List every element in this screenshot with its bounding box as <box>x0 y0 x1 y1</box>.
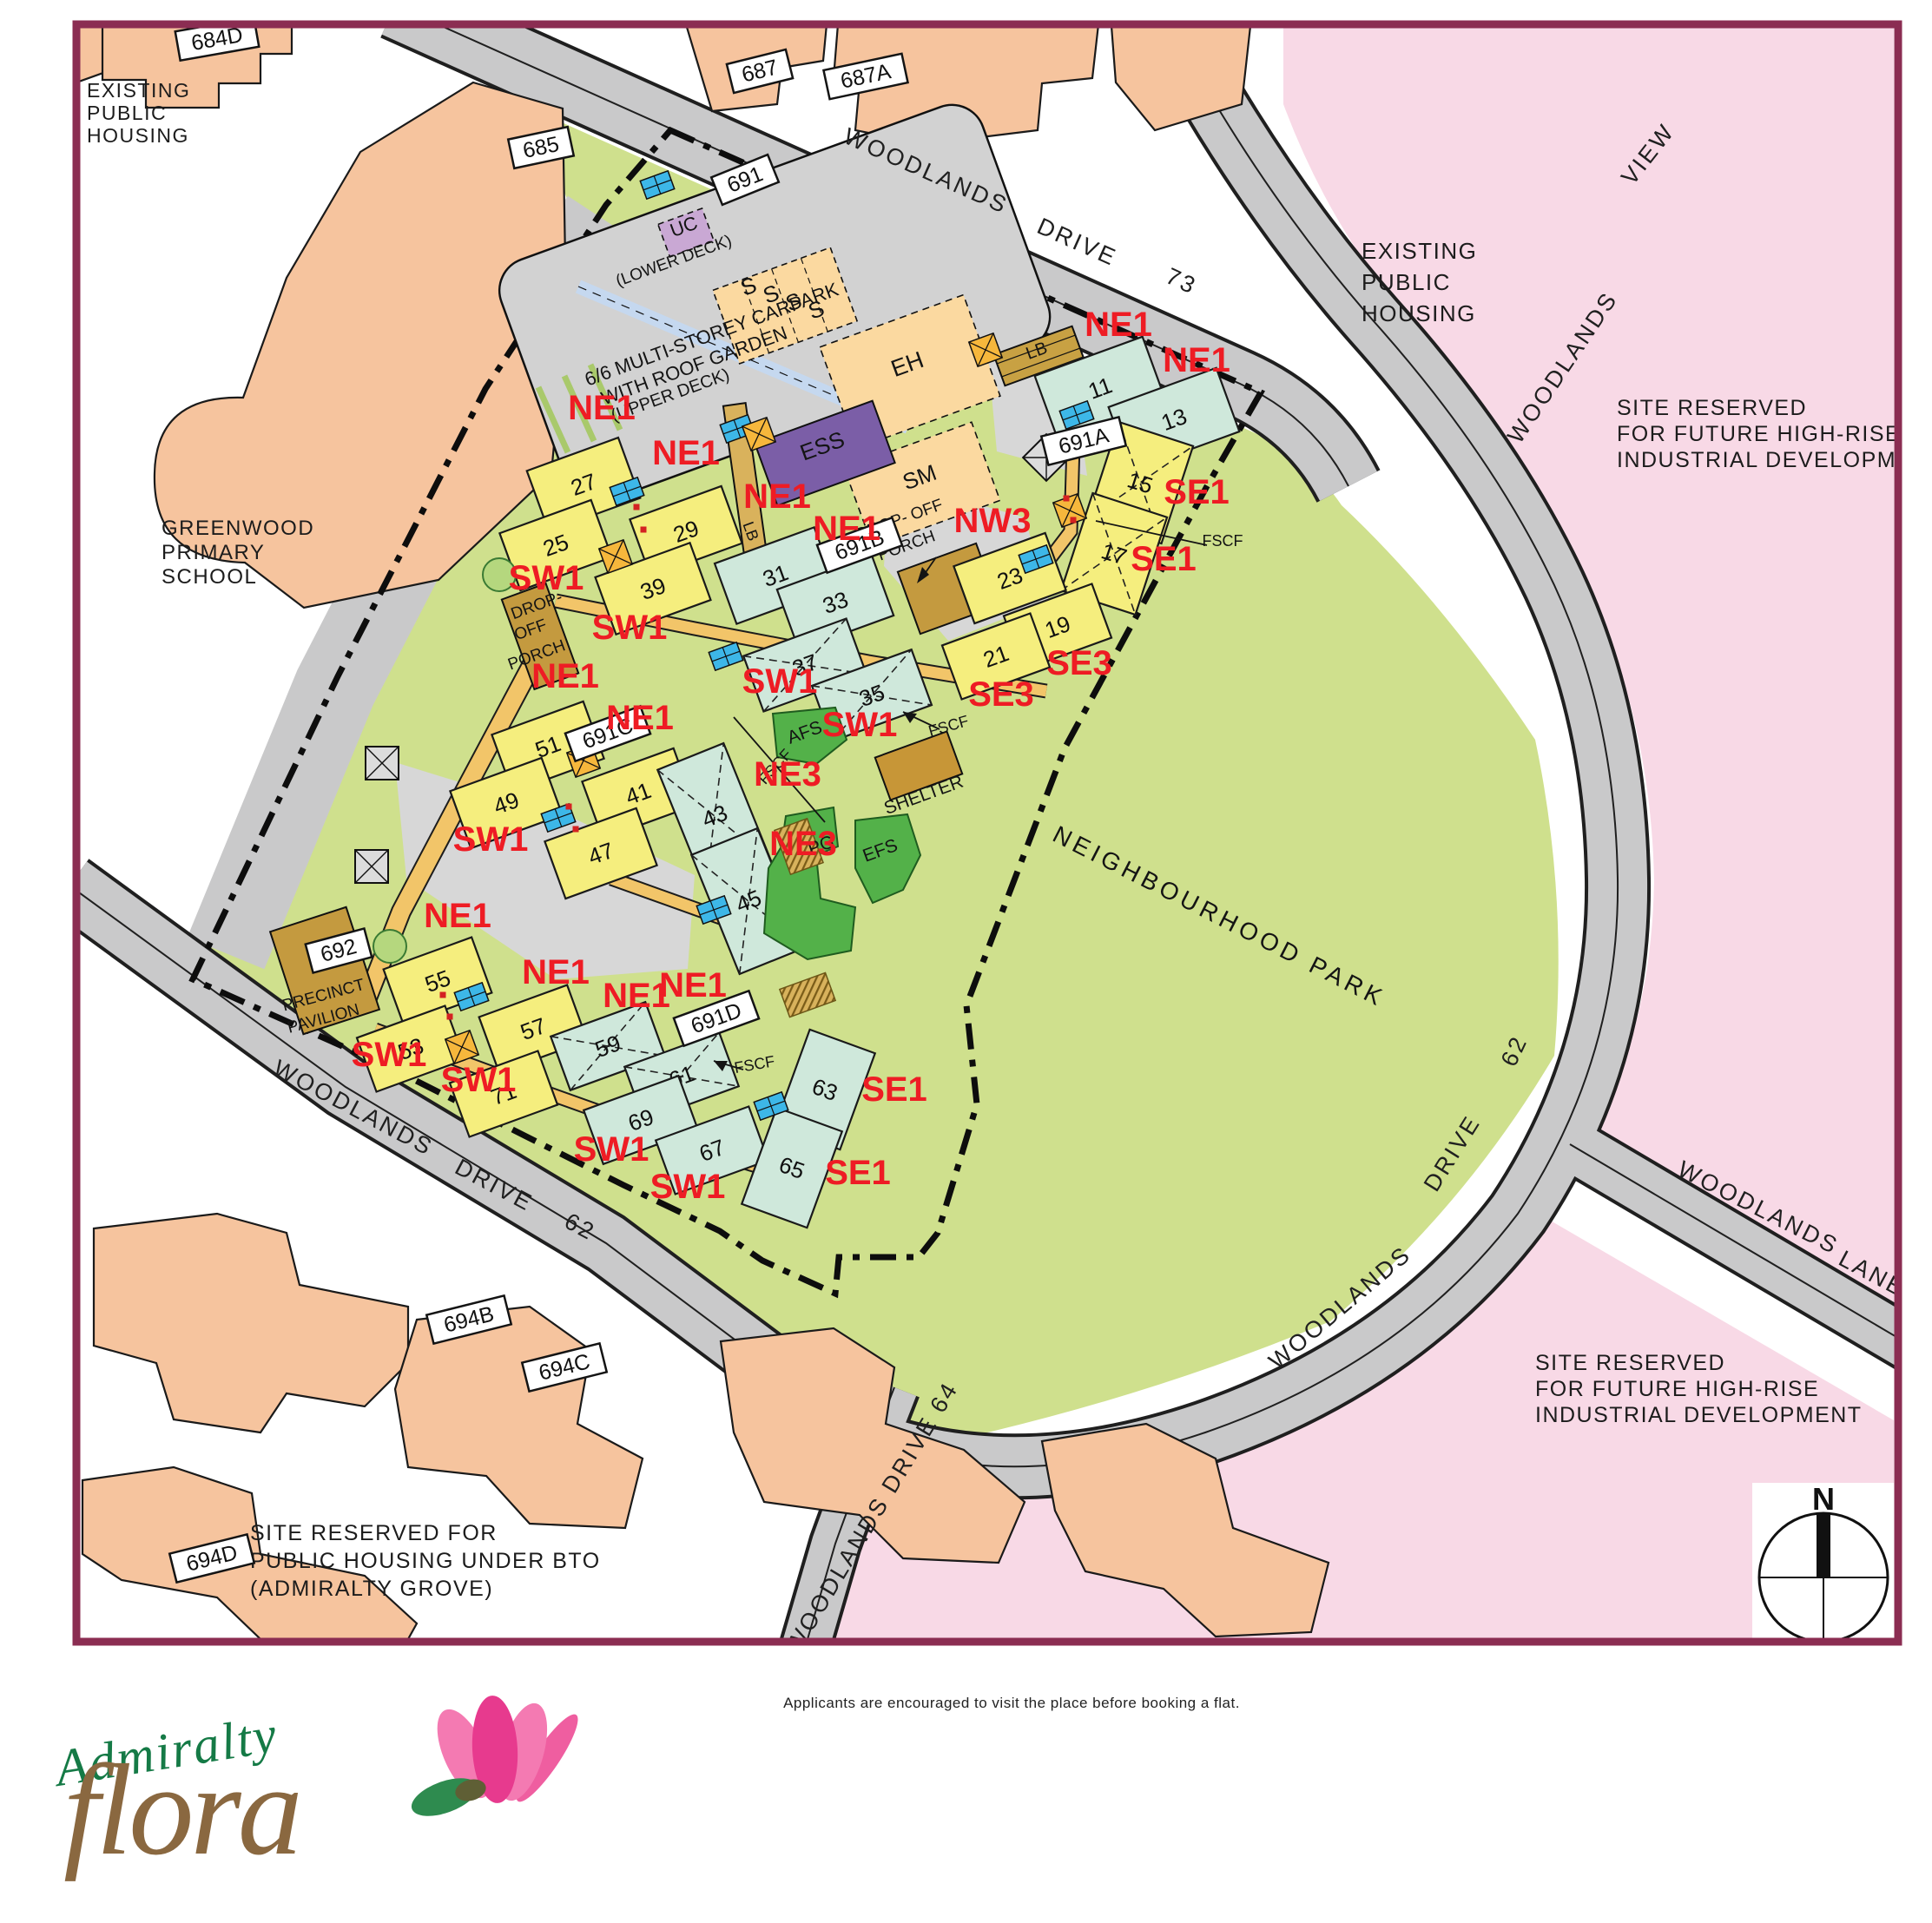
orientation-label-ne1: NE1 <box>813 510 880 548</box>
existing-public-housing-nw: HOUSING <box>87 124 189 147</box>
orientation-label-ne1: NE1 <box>424 897 491 935</box>
bto-site: PUBLIC HOUSING UNDER BTO <box>250 1549 601 1573</box>
orientation-label-se1: SE1 <box>1131 540 1197 578</box>
industrial-site-ne: FOR FUTURE HIGH-RISE <box>1617 422 1901 446</box>
substation-marker <box>366 747 399 780</box>
orientation-label-ne1: NE1 <box>1085 306 1152 344</box>
brand-logo: Admiralty flora <box>48 1671 656 1919</box>
orientation-label-ne1: NE1 <box>659 966 727 1004</box>
access-tick <box>440 992 446 998</box>
access-tick <box>447 1014 453 1020</box>
industrial-site-ne: INDUSTRIAL DEVELOPMENT <box>1617 448 1932 472</box>
orientation-label-sw1: SW1 <box>441 1061 517 1099</box>
orientation-label-ne1: NE1 <box>531 657 599 695</box>
compass: N <box>1752 1481 1896 1648</box>
orientation-label-nw3: NW3 <box>954 502 1032 540</box>
industrial-site-se: SITE RESERVED <box>1535 1351 1725 1375</box>
industrial-site-se: FOR FUTURE HIGH-RISE <box>1535 1377 1819 1401</box>
orientation-label-sw1: SW1 <box>352 1036 427 1074</box>
brand-name-text: flora <box>63 1735 300 1885</box>
access-tick <box>1064 496 1070 502</box>
orientation-label-sw1: SW1 <box>592 609 668 647</box>
orientation-label-sw1: SW1 <box>742 662 818 701</box>
road-label: 73 <box>1162 263 1201 300</box>
orientation-label-sw1: SW1 <box>650 1168 726 1206</box>
existing-public-housing-nw: EXISTING <box>87 79 190 102</box>
orientation-label-sw1: SW1 <box>453 820 529 859</box>
fscf-label: FSCF <box>1203 532 1243 550</box>
north-needle <box>1817 1513 1830 1577</box>
bto-site: (ADMIRALTY GROVE) <box>250 1577 493 1601</box>
access-tick <box>573 826 579 833</box>
orientation-label-ne3: NE3 <box>769 825 837 863</box>
orientation-label-ne1: NE1 <box>568 389 636 427</box>
orientation-label-se3: SE3 <box>968 675 1034 714</box>
orientation-label-ne1: NE1 <box>1163 341 1230 379</box>
existing-public-housing-ne: HOUSING <box>1362 300 1476 326</box>
access-tick <box>566 804 572 810</box>
lotus-flower-icon <box>391 1667 608 1849</box>
orientation-label-sw1: SW1 <box>822 706 898 744</box>
orientation-label-ne1: NE1 <box>743 477 811 516</box>
industrial-site-se: INDUSTRIAL DEVELOPMENT <box>1535 1403 1863 1427</box>
compass-north-label: N <box>1812 1481 1835 1517</box>
substation-marker <box>355 850 388 883</box>
site-map-canvas: 2725293931333735111315172319215149414743… <box>0 0 1932 1923</box>
orientation-label-ne3: NE3 <box>754 755 821 794</box>
orientation-label-ne1: NE1 <box>606 699 674 737</box>
bto-site: SITE RESERVED FOR <box>250 1521 498 1545</box>
greenwood-primary-school: SCHOOL <box>162 565 257 589</box>
orientation-label-se1: SE1 <box>825 1154 891 1192</box>
existing-public-housing-ne: EXISTING <box>1362 238 1477 264</box>
site-map-page: 2725293931333735111315172319215149414743… <box>0 0 1932 1923</box>
access-tick <box>641 527 647 533</box>
existing-public-housing-ne: PUBLIC <box>1362 269 1451 295</box>
industrial-site-ne: SITE RESERVED <box>1617 396 1807 420</box>
orientation-label-sw1: SW1 <box>509 559 584 597</box>
access-tick <box>634 504 640 510</box>
orientation-label-sw1: SW1 <box>574 1130 649 1169</box>
greenwood-primary-school: GREENWOOD <box>162 517 314 540</box>
orientation-label-ne1: NE1 <box>652 434 720 472</box>
existing-public-housing-nw: PUBLIC <box>87 102 167 124</box>
greenwood-primary-school: PRIMARY <box>162 541 265 564</box>
orientation-label-se1: SE1 <box>1164 473 1230 511</box>
access-tick <box>1071 517 1077 524</box>
orientation-label-se3: SE3 <box>1046 644 1112 682</box>
orientation-label-ne1: NE1 <box>522 953 590 991</box>
orientation-label-se1: SE1 <box>861 1070 927 1109</box>
